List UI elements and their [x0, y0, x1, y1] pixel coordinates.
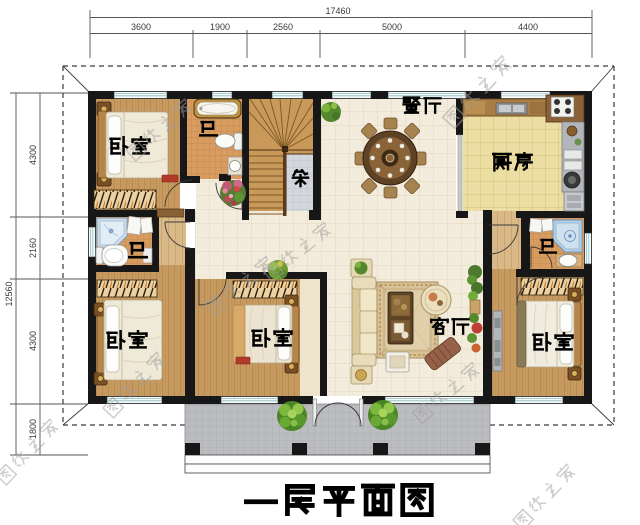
svg-text:4400: 4400 [518, 22, 538, 32]
svg-text:1800: 1800 [28, 419, 38, 439]
svg-text:5000: 5000 [382, 22, 402, 32]
svg-text:1900: 1900 [210, 22, 230, 32]
svg-text:17460: 17460 [325, 6, 350, 16]
svg-text:12560: 12560 [4, 281, 14, 306]
svg-text:2560: 2560 [273, 22, 293, 32]
svg-text:2160: 2160 [28, 238, 38, 258]
svg-text:3600: 3600 [131, 22, 151, 32]
svg-text:4300: 4300 [28, 145, 38, 165]
svg-text:4300: 4300 [28, 331, 38, 351]
